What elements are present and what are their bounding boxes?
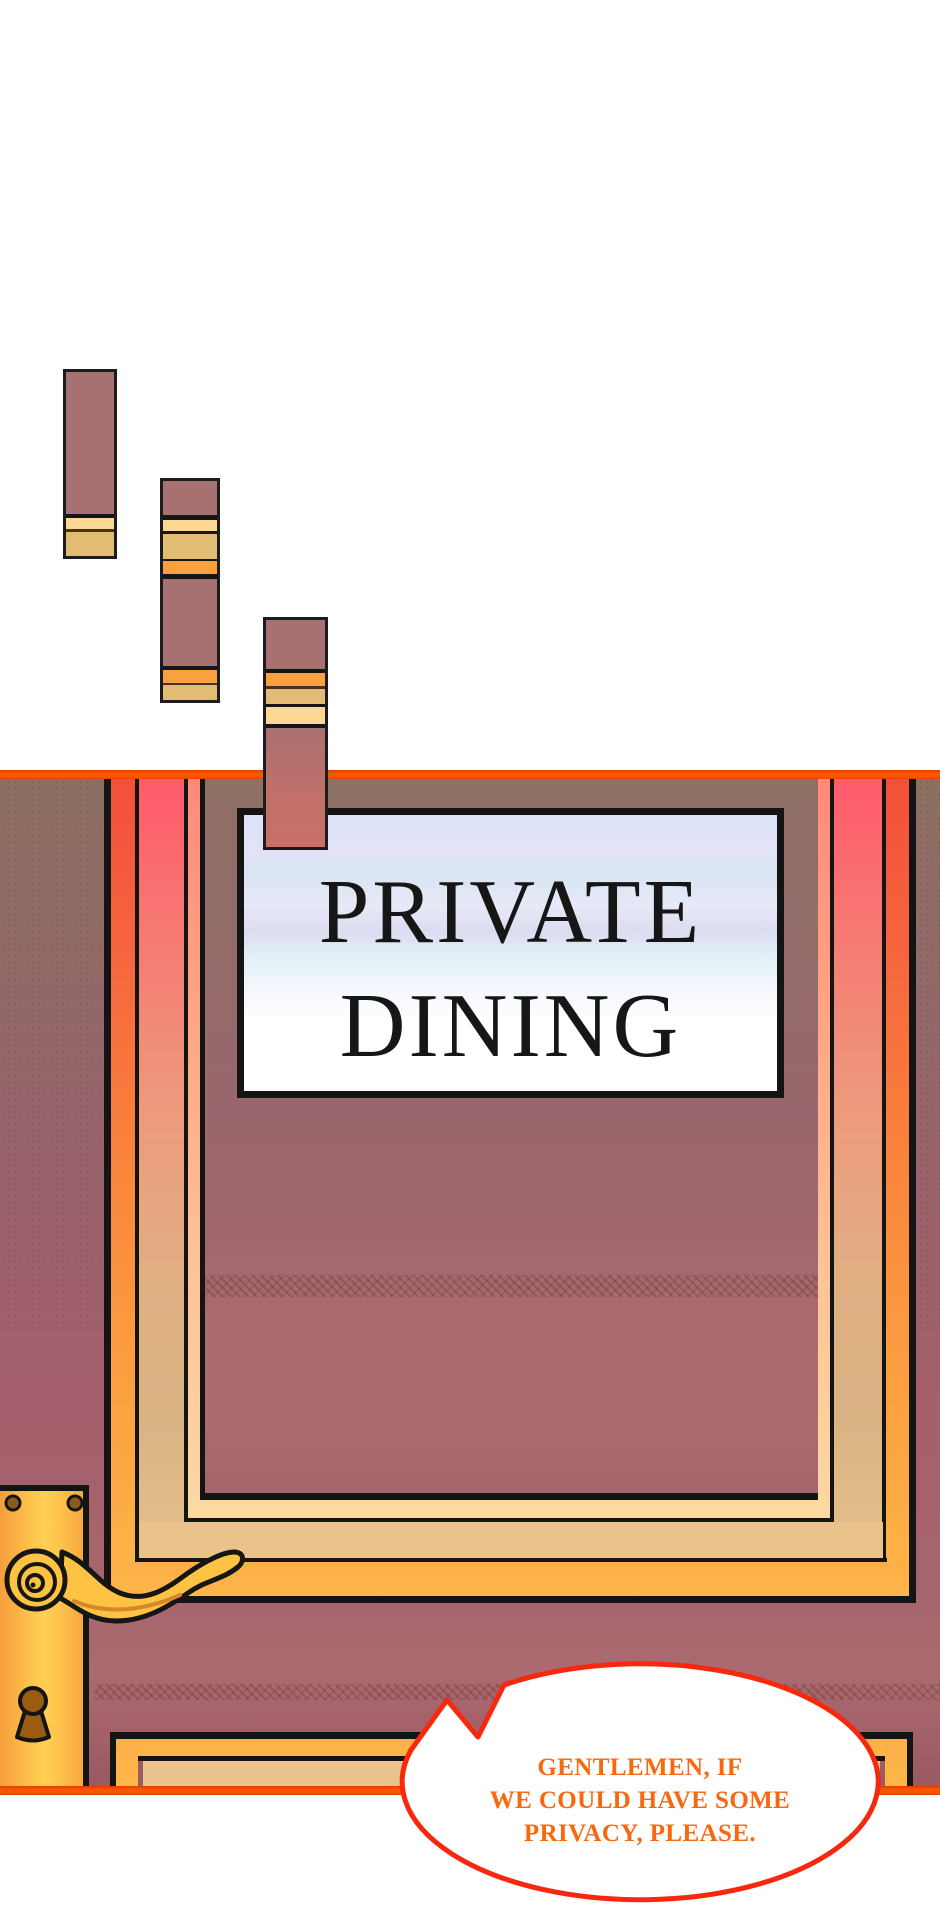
frame-outline <box>200 1493 818 1500</box>
frame-cream-band-left <box>188 779 200 1522</box>
plank-segment <box>163 561 217 574</box>
plank-segment <box>163 481 217 515</box>
plank-segment <box>66 372 114 514</box>
plank-segment <box>266 728 325 847</box>
panel-border-top <box>0 770 940 779</box>
frame-outline <box>104 779 111 1603</box>
lower-panel-outline <box>907 1732 913 1786</box>
speech-bubble-text: GENTLEMEN, IF WE COULD HAVE SOME PRIVACY… <box>460 1751 820 1850</box>
plank-segment <box>163 579 217 666</box>
falling-plank-1 <box>63 369 117 559</box>
plank-segment <box>266 673 325 686</box>
frame-gold-band-left <box>111 779 135 1596</box>
bubble-text-line-1: GENTLEMEN, IF <box>460 1751 820 1784</box>
frame-gold-band-bottom <box>111 1562 909 1596</box>
falling-plank-3 <box>263 617 328 850</box>
falling-plank-2 <box>160 478 220 703</box>
plank-segment <box>266 620 325 669</box>
private-dining-sign: PRIVATE DINING <box>237 808 784 1098</box>
plank-segment <box>66 532 114 556</box>
bubble-text-line-3: PRIVACY, PLEASE. <box>460 1817 820 1850</box>
comic-page: PRIVATE DINING <box>0 0 940 1920</box>
recess-hatch-band <box>205 1275 818 1297</box>
comic-panel: PRIVATE DINING <box>0 770 940 1795</box>
plank-segment <box>266 707 325 724</box>
frame-tan-band-right <box>834 779 882 1562</box>
sign-text-line-2: DINING <box>244 969 777 1083</box>
plank-segment <box>163 520 217 531</box>
frame-gold-band-right <box>886 779 909 1596</box>
frame-outline <box>104 1596 916 1603</box>
frame-tan-band-left <box>139 779 184 1562</box>
lower-panel-outline <box>110 1732 913 1739</box>
lower-panel-gold-stub <box>116 1739 138 1786</box>
sign-face: PRIVATE DINING <box>244 815 777 1091</box>
plank-segment <box>266 689 325 704</box>
frame-cream-band-bottom <box>188 1500 830 1518</box>
plank-segment <box>163 670 217 683</box>
frame-cream-band-right <box>818 779 830 1522</box>
door-art: PRIVATE DINING <box>0 779 940 1786</box>
plank-segment <box>163 534 217 559</box>
lower-panel-gold-stub <box>885 1739 907 1786</box>
plank-segment <box>163 685 217 700</box>
door-hatch-band <box>95 1684 940 1700</box>
frame-tan-band-bottom <box>139 1522 883 1558</box>
bubble-text-line-2: WE COULD HAVE SOME <box>460 1784 820 1817</box>
frame-outline <box>909 779 916 1603</box>
plank-segment <box>66 518 114 529</box>
door-handle-backplate <box>0 1485 89 1786</box>
sign-text-line-1: PRIVATE <box>244 855 777 969</box>
